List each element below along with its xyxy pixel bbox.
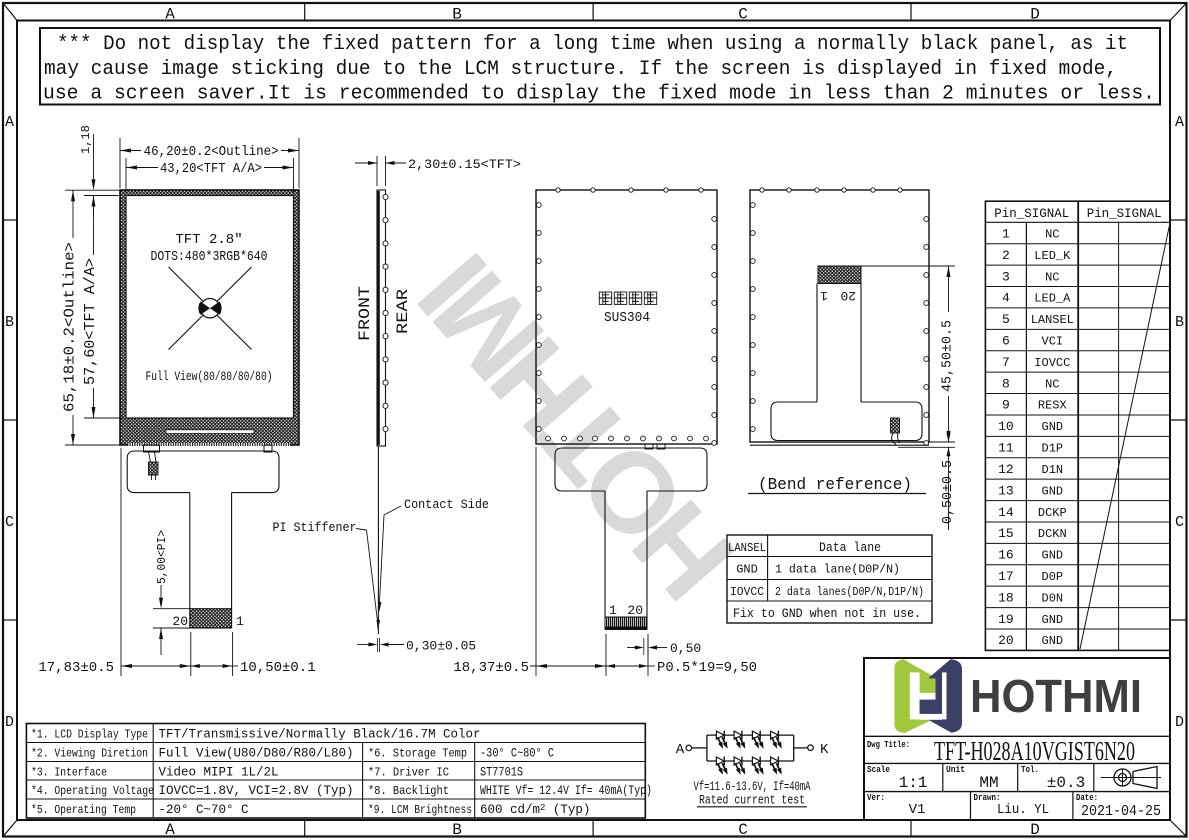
svg-text:D: D [5,714,14,731]
svg-text:B: B [1175,314,1184,331]
svg-text:5,00<PI>: 5,00<PI> [155,530,169,584]
svg-text:2021-04-25: 2021-04-25 [1081,803,1161,820]
svg-text:17,83±0.5: 17,83±0.5 [38,660,114,676]
svg-text:FRONT: FRONT [356,286,374,341]
svg-text:Contact Side: Contact Side [404,497,489,512]
svg-text:0,30±0.05: 0,30±0.05 [406,639,476,654]
svg-text:GND: GND [1042,549,1064,563]
svg-text:GND: GND [1042,484,1064,498]
svg-text:NC: NC [1045,377,1059,391]
svg-text:MM: MM [979,774,998,792]
svg-text:GND: GND [1042,613,1064,627]
svg-text:A: A [5,114,14,131]
svg-text:LED_A: LED_A [1034,292,1071,306]
svg-text:(Bend reference): (Bend reference) [758,476,912,495]
svg-text:15: 15 [998,526,1014,541]
svg-text:2 data lanes(D0P/N,D1P/N): 2 data lanes(D0P/N,D1P/N) [775,585,924,599]
svg-text:TFT/Transmissive/Normally Blac: TFT/Transmissive/Normally Black/16.7M Co… [159,728,481,742]
svg-text:A: A [165,6,175,24]
svg-text:1: 1 [236,614,244,629]
svg-text:*1. LCD Display Type: *1. LCD Display Type [31,728,148,742]
svg-text:GND: GND [1042,634,1064,648]
svg-text:20: 20 [998,633,1014,648]
svg-text:Dwg Title:: Dwg Title: [867,740,910,750]
svg-text:P0.5*19=9,50: P0.5*19=9,50 [657,660,757,676]
svg-text:20: 20 [172,614,188,629]
svg-text:4: 4 [1002,291,1010,306]
svg-text:11: 11 [998,441,1014,456]
svg-text:Liu. YL: Liu. YL [997,802,1049,818]
svg-text:WHITE Vf= 12.4V If= 40mA(Typ): WHITE Vf= 12.4V If= 40mA(Typ) [480,784,652,798]
svg-text:B: B [452,6,462,24]
svg-text:*9. LCM Brightness: *9. LCM Brightness [368,803,472,817]
svg-text:Tol.: Tol. [1021,765,1039,775]
svg-text:2: 2 [1002,248,1010,263]
svg-text:-20° C~70° C: -20° C~70° C [159,803,249,817]
svg-text:DCKN: DCKN [1038,527,1067,541]
svg-text:Unit: Unit [946,765,965,775]
svg-text:-30° C~80° C: -30° C~80° C [480,747,554,761]
svg-text:DCKP: DCKP [1038,506,1067,520]
svg-text:43,20<TFT A/A>: 43,20<TFT A/A> [160,161,262,177]
svg-text:D1P: D1P [1042,442,1064,456]
svg-text:Scale: Scale [867,765,890,775]
svg-text:3: 3 [1002,269,1010,284]
svg-text:Date:: Date: [1076,793,1098,803]
svg-text:IOVCC=1.8V, VCI=2.8V (Typ): IOVCC=1.8V, VCI=2.8V (Typ) [159,784,354,798]
svg-text:V1: V1 [909,802,926,818]
svg-text:B: B [452,821,462,839]
svg-text:RESX: RESX [1038,399,1067,413]
svg-text:LANSEL: LANSEL [1031,313,1074,327]
svg-text:REAR: REAR [394,289,412,334]
svg-text:use a screen saver.It is recom: use a screen saver.It is recommended to … [43,83,1155,106]
svg-text:Full View(80/80/80/80): Full View(80/80/80/80) [146,369,273,384]
svg-text:A: A [165,821,175,839]
svg-text:1: 1 [609,603,617,618]
svg-text:TFT 2.8": TFT 2.8" [175,232,242,248]
svg-text:19: 19 [998,612,1014,627]
svg-text:16: 16 [998,548,1014,563]
svg-text:*8. Backlight: *8. Backlight [368,784,449,798]
svg-text:1: 1 [1002,227,1010,242]
svg-text:7: 7 [1002,355,1010,370]
svg-text:6: 6 [1002,334,1010,349]
svg-text:46,20±0.2<Outline>: 46,20±0.2<Outline> [144,144,279,160]
svg-text:1: 1 [820,288,828,303]
svg-text:13: 13 [998,483,1014,498]
svg-text:D: D [1030,821,1040,839]
svg-text:0,50: 0,50 [670,641,701,656]
svg-text:NC: NC [1045,228,1059,242]
svg-text:GND: GND [1042,420,1064,434]
svg-text:D1N: D1N [1042,463,1064,477]
svg-text:B: B [5,314,14,331]
svg-text:K: K [820,742,829,758]
svg-text:may cause image sticking due t: may cause image sticking due to the LCM … [44,58,1117,81]
svg-text:DOTS:480*3RGB*640: DOTS:480*3RGB*640 [151,249,268,265]
svg-text:IOVCC: IOVCC [730,585,764,599]
svg-text:HOTHMI: HOTHMI [970,670,1142,722]
svg-text:±0.3: ±0.3 [1047,774,1085,792]
svg-text:TFT-H028A10VGIST6N20: TFT-H028A10VGIST6N20 [934,736,1135,766]
svg-text:SUS304: SUS304 [604,310,650,326]
svg-text:VCI: VCI [1042,335,1064,349]
svg-text:0,50±0.5: 0,50±0.5 [940,460,956,524]
svg-text:1:1: 1:1 [899,774,928,792]
svg-text:Video MIPI 1L/2L: Video MIPI 1L/2L [159,766,279,780]
svg-text:D0N: D0N [1042,591,1064,605]
svg-text:D0P: D0P [1042,570,1064,584]
svg-text:PI Stiffener: PI Stiffener [273,520,357,535]
svg-text:*2. Viewing Diretion: *2. Viewing Diretion [31,747,148,761]
svg-text:18,37±0.5: 18,37±0.5 [453,660,529,676]
svg-text:C: C [5,514,14,531]
svg-text:Data lane: Data lane [819,540,881,555]
svg-text:1,18: 1,18 [79,125,93,154]
svg-text:*4. Operating Voltage: *4. Operating Voltage [31,784,154,798]
svg-text:*6. Storage Temp: *6. Storage Temp [368,747,467,761]
svg-text:NC: NC [1045,270,1059,284]
svg-text:*7. Driver IC: *7. Driver IC [368,766,449,780]
svg-text:Pin_SIGNAL: Pin_SIGNAL [994,206,1069,221]
svg-text:D: D [1030,6,1040,24]
svg-text:*5. Operating Temp: *5. Operating Temp [31,803,136,817]
svg-text:17: 17 [998,569,1014,584]
svg-text:Rated current test: Rated current test [699,793,805,808]
svg-text:IOVCC: IOVCC [1034,356,1070,370]
svg-text:C: C [738,6,748,24]
svg-text:18: 18 [998,590,1014,605]
svg-text:LED_K: LED_K [1034,249,1071,263]
svg-text:Full View(U80/D80/R80/L80): Full View(U80/D80/R80/L80) [159,747,354,761]
svg-text:LANSEL: LANSEL [728,541,766,555]
svg-text:Ver:: Ver: [867,793,885,803]
svg-text:45,50±0.5: 45,50±0.5 [940,320,956,392]
svg-text:A: A [1175,114,1184,131]
svg-text:1 data lane(D0P/N): 1 data lane(D0P/N) [775,563,900,577]
svg-text:57,60<TFT A/A>: 57,60<TFT A/A> [82,258,99,385]
svg-text:C: C [738,821,748,839]
svg-text:Pin_SIGNAL: Pin_SIGNAL [1087,206,1162,221]
svg-text:9: 9 [1002,398,1010,413]
svg-text:14: 14 [998,505,1014,520]
svg-text:D: D [1175,714,1184,731]
svg-text:10,50±0.1: 10,50±0.1 [240,660,316,676]
svg-text:Fix to GND when not in use.: Fix to GND when not in use. [733,606,921,621]
svg-text:*** Do not display the fixed p: *** Do not display the fixed pattern for… [57,33,1128,56]
svg-text:5: 5 [1002,312,1010,327]
svg-text:A: A [676,742,685,758]
svg-text:*3. Interface: *3. Interface [31,766,107,780]
svg-text:ST7701S: ST7701S [480,766,523,780]
svg-text:GND: GND [736,563,758,577]
svg-text:20: 20 [627,603,643,618]
svg-text:10: 10 [998,419,1014,434]
svg-text:600 cd/m2 (Typ): 600 cd/m2 (Typ) [480,803,590,817]
svg-text:C: C [1175,514,1184,531]
svg-text:2,30±0.15<TFT>: 2,30±0.15<TFT> [408,157,521,172]
svg-text:8: 8 [1002,376,1010,391]
svg-text:12: 12 [998,462,1014,477]
svg-text:20: 20 [840,288,856,303]
svg-text:65,18±0.2<Outline>: 65,18±0.2<Outline> [62,242,79,412]
